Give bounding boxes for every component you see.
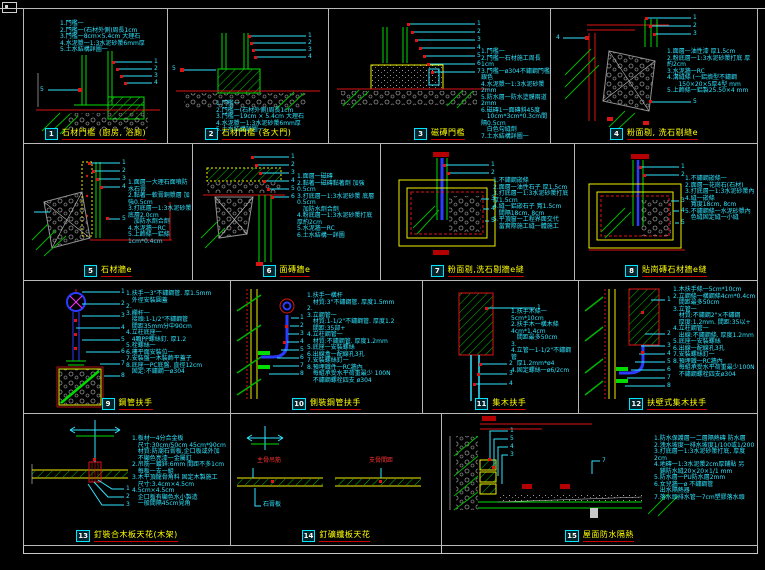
leader-number: 4 xyxy=(681,208,685,214)
detail-number-badge: 2 xyxy=(205,128,218,140)
cad-detail-sheet: 1.門檻一 2.門檻一(石材外側)周長1cm 3.門檻一8cm×5.4cm 大理… xyxy=(0,0,765,570)
detail-title: 釘礦纖板天花 xyxy=(319,530,370,542)
leader-number: 4 xyxy=(667,351,671,357)
detail-panel-4: 1.面層一油性漆 厚1.5cm 2.粉底層一1:3水泥砂漿打底 厚約2cm 3.… xyxy=(550,8,758,144)
detail-number-badge: 11 xyxy=(475,398,489,410)
sheet-left-stub xyxy=(23,545,24,554)
detail-caption: 8 貼崗磚石材牆e縫 xyxy=(575,265,757,277)
detail-caption: 7 粉面剔,洗石剔牆e縫 xyxy=(381,265,574,277)
leader-number: 3 xyxy=(291,170,295,176)
detail-caption: 5 石材牆e xyxy=(24,265,192,277)
detail-number-badge: 14 xyxy=(302,530,316,542)
leader-number: 7 xyxy=(121,361,125,367)
leader-number: 1 xyxy=(126,486,130,492)
annotation-notes: 1.面層一大理石面噴防水石膏 2.黏著一軟膏銅漿層 加強0.5cm 3.打底層一… xyxy=(128,180,192,245)
detail-number-badge: 7 xyxy=(431,265,444,277)
leader-number: 1 xyxy=(291,154,295,160)
leader-number: 3 xyxy=(510,452,514,458)
leader-number: 6 xyxy=(477,61,481,67)
detail-number-badge: 5 xyxy=(84,265,97,277)
leader-number: 4 xyxy=(154,80,158,86)
leader-number: 1 xyxy=(667,297,671,303)
leader-number: 1 xyxy=(300,315,304,321)
leader-number: 3 xyxy=(491,196,495,202)
leader-number: 4 xyxy=(510,444,514,450)
leader-number: 4 xyxy=(291,178,295,184)
leader-number: 2 xyxy=(121,301,125,307)
leader-number: 1 xyxy=(510,428,514,434)
detail-title: 貼崗磚石材牆e縫 xyxy=(642,265,707,277)
sheet-bottom-border xyxy=(23,553,758,554)
leader-number: 2 xyxy=(477,29,481,35)
detail-title: 集木扶手 xyxy=(492,398,526,410)
detail-title: 面磚牆e xyxy=(280,265,311,277)
leader-number: 5 xyxy=(121,337,125,343)
leader-number: 1 xyxy=(681,164,685,170)
leader-number: 1 xyxy=(491,162,495,168)
leader-number: 5 xyxy=(681,220,685,226)
leader-number: 4 xyxy=(477,45,481,51)
annotation-notes: 1.防水保護層一二層隔熱磚 防水層 2.洩水坡度一排水坡度1/100或1/200… xyxy=(654,436,756,501)
detail-number-badge: 3 xyxy=(414,128,427,140)
leader-number: 3 xyxy=(122,176,126,182)
detail-panel-6: 1.面層一磁磚 2.黏著一磁磚黏著劑 加強0.5cm 3.打底層一1:3水泥砂漿… xyxy=(192,143,381,281)
detail-number-badge: 13 xyxy=(76,530,90,542)
detail-caption: 15 屋面防水隔熱 xyxy=(442,530,757,542)
detail-caption: 13 釘裝合木板天花(木架) xyxy=(24,530,230,542)
leader-number: 8 xyxy=(121,373,125,379)
leader-number: 7 xyxy=(477,69,481,75)
leader-number: 3 xyxy=(681,198,685,204)
detail-caption: 4 粉面剔, 洗石剔縫e xyxy=(551,128,757,140)
detail-title: 屋面防水隔熱 xyxy=(583,530,634,542)
leader-number: 2 xyxy=(693,23,697,29)
leader-number: 4 xyxy=(308,54,312,60)
annotation-notes: 1.扶手一橫杆 材質:3"不鏽鋼管. 厚度1.5mm 2. 3.立鋼管一 材質:… xyxy=(307,293,419,384)
leader-number: 5 xyxy=(172,66,176,72)
leader-number: 3 xyxy=(477,37,481,43)
detail-panel-2: 1.門檻一 2.門檻一(石材外側)周長1cm 3.門檻一19cm × 5.4cm… xyxy=(167,8,329,144)
annotation-notes: 1.門檻一 2.門檻一(石材外側)周長1cm 3.門檻一8cm×5.4cm 大理… xyxy=(60,21,164,54)
detail-number-badge: 4 xyxy=(610,128,623,140)
detail-panel-10: 1.扶手一橫杆 材質:3"不鏽鋼管. 厚度1.5mm 2. 3.立鋼管一 材質:… xyxy=(230,280,423,414)
detail-panel-8: 1.不鏽鋼嵌條一 2.面層一花崗石(石材) 3.打底層一1:3水泥砂漿內 4.縫… xyxy=(574,143,758,281)
detail-panel-15: 1.防水保護層一二層隔熱磚 防水層 2.洩水坡度一排水坡度1/100或1/200… xyxy=(441,413,758,546)
detail-caption: 2 石材門檻 (各大門) xyxy=(168,128,328,140)
detail-number-badge: 1 xyxy=(45,128,58,140)
leader-number: 3 xyxy=(693,31,697,37)
detail-title: 粉面剔,洗石剔牆e縫 xyxy=(448,265,524,277)
leader-number: 4 xyxy=(556,35,560,41)
titleblock-divider xyxy=(441,545,442,554)
detail-caption: 11 集木扶手 xyxy=(423,398,578,410)
leader-number: 4 xyxy=(122,184,126,190)
leader-number: 6 xyxy=(121,349,125,355)
detail-caption: 6 面磚牆e xyxy=(193,265,380,277)
leader-number: 4 xyxy=(509,381,513,387)
detail-caption: 10 側裝鋼管扶手 xyxy=(231,398,422,410)
leader-number: 1 xyxy=(537,305,541,311)
leader-number: 5 xyxy=(693,99,697,105)
annotation-notes: 1.不鏽鋼嵌條一 2.面層一花崗石(石材) 3.打底層一1:3水泥砂漿內 4.縫… xyxy=(685,176,757,222)
leader-number: 4 xyxy=(121,325,125,331)
leader-number: 5 xyxy=(122,216,126,222)
leader-number: 2 xyxy=(491,170,495,176)
detail-title: 石材門檻 (廚房, 浴廁) xyxy=(62,128,146,140)
leader-number: 6 xyxy=(291,194,295,200)
detail-caption: 1 石材門檻 (廚房, 浴廁) xyxy=(24,128,167,140)
annotation-notes: 1.面層一油性漆 厚1.5cm 2.粉底層一1:3水泥砂漿打底 厚約2cm 3.… xyxy=(667,49,755,95)
red-label-cross-runner: 支骨間距 xyxy=(369,458,393,465)
annotation-notes: 1.不鏽鋼嵌條 2.面層一油性石子 厚1.5cm 3.打底層一1:3水泥砂漿打底… xyxy=(493,178,573,230)
detail-number-badge: 6 xyxy=(263,265,276,277)
leader-number: 2 xyxy=(667,331,671,337)
annotation-notes: 1.門檻一 2.門檻一石材施工周長1cm 3.門檻一ø304不鏽鋼門檻 銀色 4… xyxy=(481,49,551,140)
detail-title: 扶壁式集木扶手 xyxy=(647,398,707,410)
detail-caption: 3 磁磚門檻 xyxy=(329,128,550,140)
detail-title: 釘裝合木板天花(木架) xyxy=(94,530,178,542)
detail-number-badge: 10 xyxy=(292,398,306,410)
leader-number: 4 xyxy=(491,206,495,212)
detail-panel-5: 1.面層一大理石面噴防水石膏 2.黏著一軟膏銅漿層 加強0.5cm 3.打底層一… xyxy=(23,143,193,281)
gypsum-board-label: 石膏板 xyxy=(263,502,281,509)
leader-number: 3 xyxy=(509,371,513,377)
leader-number: 3 xyxy=(667,343,671,349)
detail-panel-1: 1.門檻一 2.門檻一(石材外側)周長1cm 3.門檻一8cm×5.4cm 大理… xyxy=(23,8,168,144)
detail-title: 石材牆e xyxy=(101,265,132,277)
leader-number: 2 xyxy=(122,168,126,174)
detail-panel-9: 1.扶手一3"不鏽鋼管. 厚1.5mm 外徑安裝圓蓋 2. 3.欄杆一 接頭:1… xyxy=(23,280,231,414)
leader-number: 8 xyxy=(300,371,304,377)
leader-number: 2 xyxy=(300,323,304,329)
leader-number: 2 xyxy=(291,162,295,168)
detail-drawing-mineral-board-ceiling xyxy=(231,414,441,545)
annotation-notes: 1.木扶手條一5cm*10cm 2.立鋼條一橫鋼條4cm*0.4cm 間距最多5… xyxy=(673,287,757,378)
leader-number: 1 xyxy=(121,289,125,295)
leader-number: 8 xyxy=(667,383,671,389)
leader-number: 5 xyxy=(40,87,44,93)
annotation-notes: 1.面層一磁磚 2.黏著一磁磚黏著劑 加強0.5cm 3.打底層一1:3水泥砂漿… xyxy=(297,174,379,239)
annotation-notes: 1.扶手一3"不鏽鋼管. 厚1.5mm 外徑安裝圓蓋 2. 3.欄杆一 接頭:1… xyxy=(126,291,228,376)
leader-number: 5 xyxy=(477,53,481,59)
detail-panel-12: 1.木扶手條一5cm*10cm 2.立鋼條一橫鋼條4cm*0.4cm 間距最多5… xyxy=(578,280,758,414)
leader-number: 5 xyxy=(510,436,514,442)
leader-number: 7 xyxy=(667,375,671,381)
detail-number-badge: 12 xyxy=(629,398,643,410)
leader-number: 6 xyxy=(300,355,304,361)
leader-number: 1 xyxy=(693,15,697,21)
detail-caption: 9 鋼管扶手 xyxy=(24,398,230,410)
leader-number: 1 xyxy=(122,160,126,166)
detail-title: 石材門檻 (各大門) xyxy=(222,128,292,140)
leader-number: 5 xyxy=(291,186,295,192)
leader-number: 2 xyxy=(126,494,130,500)
detail-title: 鋼管扶手 xyxy=(119,398,153,410)
detail-title: 側裝鋼管扶手 xyxy=(310,398,361,410)
detail-caption: 12 扶壁式集木扶手 xyxy=(579,398,757,410)
detail-caption: 14 釘礦纖板天花 xyxy=(231,530,441,542)
leader-number: 3 xyxy=(121,313,125,319)
leader-number: 5 xyxy=(491,218,495,224)
leader-number: 7 xyxy=(300,363,304,369)
sheet-right-stub xyxy=(757,545,758,554)
leader-number: 7 xyxy=(602,458,606,464)
leader-number: 5 xyxy=(300,347,304,353)
detail-panel-7: 1.不鏽鋼嵌條 2.面層一油性石子 厚1.5cm 3.打底層一1:3水泥砂漿打底… xyxy=(380,143,575,281)
leader-number: 2 xyxy=(681,172,685,178)
detail-title: 磁磚門檻 xyxy=(431,128,465,140)
annotation-notes: 1.板材一4分合金板 尺寸:30cm/50cm 45cm*90cm 材質:防潮石… xyxy=(132,436,228,508)
leader-number: 2 xyxy=(509,361,513,367)
detail-panel-3: 1.門檻一 2.門檻一石材施工周長1cm 3.門檻一ø304不鏽鋼門檻 銀色 4… xyxy=(328,8,551,144)
detail-title: 粉面剔, 洗石剔縫e xyxy=(627,128,698,140)
detail-number-badge: 9 xyxy=(102,398,115,410)
detail-panel-14: 主骨吊筋 支骨間距 石膏板 14 釘礦纖板天花 xyxy=(230,413,442,546)
leader-number: 3 xyxy=(126,502,130,508)
detail-number-badge: 8 xyxy=(625,265,638,277)
red-label-main-runner: 主骨吊筋 xyxy=(257,458,281,465)
leader-number: 5 xyxy=(667,359,671,365)
annotation-notes: 1.扶手木條一5cm*10cm 2.扶手木一橫木條4cm*1.4cm 間距最多5… xyxy=(511,309,577,374)
detail-panel-11: 1.扶手木條一5cm*10cm 2.扶手木一橫木條4cm*1.4cm 間距最多5… xyxy=(422,280,579,414)
leader-number: 6 xyxy=(667,367,671,373)
detail-number-badge: 15 xyxy=(565,530,579,542)
leader-number: 1 xyxy=(477,21,481,27)
leader-number: 4 xyxy=(300,339,304,345)
leader-number: 3 xyxy=(300,331,304,337)
detail-panel-13: 1.板材一4分合金板 尺寸:30cm/50cm 45cm*90cm 材質:防潮石… xyxy=(23,413,231,546)
